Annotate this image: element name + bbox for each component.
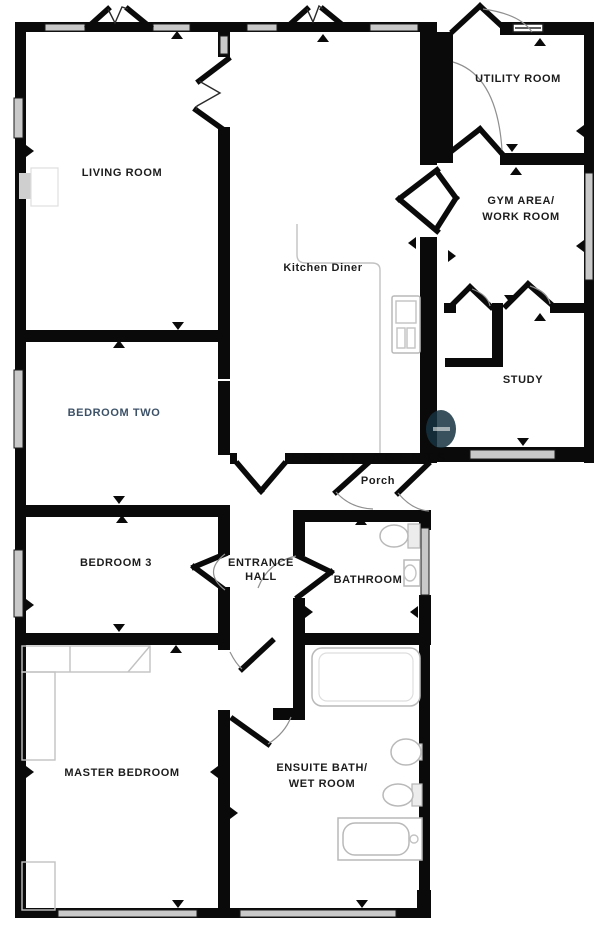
label-bedroom-two: BEDROOM TWO	[68, 407, 161, 419]
label-porch: Porch	[361, 475, 395, 487]
label-kitchen-diner: Kitchen Diner	[283, 262, 362, 274]
sink-icon	[391, 739, 422, 765]
label-entrance-hall-1: ENTRANCE	[228, 557, 294, 569]
window-ensuite-bottom	[240, 910, 396, 917]
sink-icon	[404, 560, 420, 586]
label-master-bedroom: MASTER BEDROOM	[64, 767, 179, 779]
window-bedroom-two-left	[14, 370, 23, 448]
window-bedroom-3-left	[14, 550, 23, 617]
label-entrance-hall-2: HALL	[245, 571, 277, 583]
window-study-bottom	[470, 450, 555, 459]
watermark-text: ESTATE AGENTS	[291, 450, 450, 465]
label-study: STUDY	[503, 374, 543, 386]
window-top-3	[247, 24, 277, 31]
watermark: ESTATE AGENTS	[291, 410, 456, 465]
window-top-1	[45, 24, 85, 31]
cooker-icon	[392, 296, 420, 353]
label-bathroom: BATHROOM	[334, 574, 403, 586]
window-gym-right	[585, 173, 593, 280]
window-master-bottom	[58, 910, 197, 917]
bathtub-icon	[338, 818, 422, 860]
window-top-4	[370, 24, 418, 31]
label-ensuite-2: WET ROOM	[289, 778, 356, 790]
label-gym-area-1: GYM AREA/	[487, 195, 554, 207]
label-ensuite-1: ENSUITE BATH/	[276, 762, 367, 774]
shower-icon	[312, 648, 420, 706]
label-utility-room: UTILITY ROOM	[475, 73, 561, 85]
label-gym-area-2: WORK ROOM	[482, 211, 560, 223]
toilet-icon	[380, 524, 420, 548]
label-living-room: LIVING ROOM	[82, 167, 163, 179]
label-bedroom-3: BEDROOM 3	[80, 557, 152, 569]
toilet-icon	[383, 784, 422, 806]
window-partition	[220, 36, 228, 54]
window-top-2	[153, 24, 190, 31]
kitchen-counter-outline	[297, 224, 380, 453]
window-bathroom-right	[421, 528, 429, 595]
floor-plan-svg: ESTATE AGENTS LIVING ROOM UTILITY ROOM G…	[0, 0, 606, 944]
floor-plan: ESTATE AGENTS LIVING ROOM UTILITY ROOM G…	[0, 0, 606, 944]
window-living-left	[14, 98, 23, 138]
